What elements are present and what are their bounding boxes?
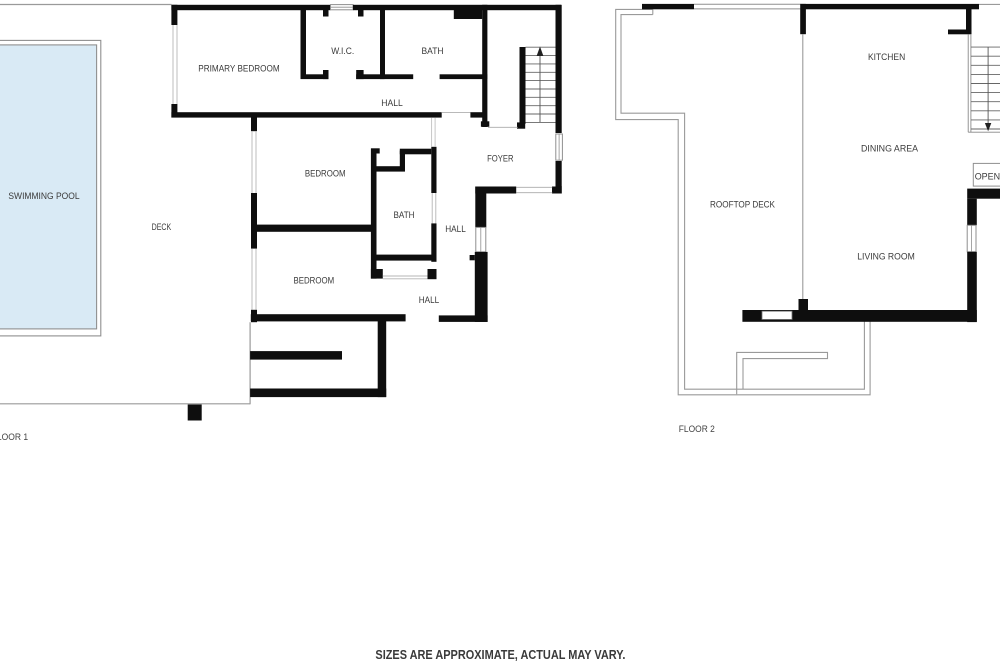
svg-text:DINING AREA: DINING AREA bbox=[861, 144, 919, 155]
svg-text:SIZES ARE APPROXIMATE, ACTUAL: SIZES ARE APPROXIMATE, ACTUAL MAY VARY. bbox=[375, 647, 625, 662]
svg-text:DECK: DECK bbox=[152, 222, 172, 233]
svg-text:KITCHEN: KITCHEN bbox=[868, 52, 905, 63]
svg-text:HALL: HALL bbox=[381, 98, 403, 109]
svg-text:OPEN TO: OPEN TO bbox=[975, 171, 1000, 182]
svg-text:BEDROOM: BEDROOM bbox=[293, 276, 334, 287]
svg-text:W.I.C.: W.I.C. bbox=[331, 46, 354, 57]
svg-text:BATH: BATH bbox=[394, 210, 415, 221]
svg-text:LIVING ROOM: LIVING ROOM bbox=[857, 252, 915, 263]
svg-text:HALL: HALL bbox=[445, 224, 466, 235]
svg-text:FLOOR 1: FLOOR 1 bbox=[0, 432, 28, 443]
svg-text:BEDROOM: BEDROOM bbox=[305, 168, 346, 179]
svg-text:FLOOR 2: FLOOR 2 bbox=[679, 424, 715, 435]
svg-text:SWIMMING POOL: SWIMMING POOL bbox=[8, 191, 80, 202]
svg-text:PRIMARY BEDROOM: PRIMARY BEDROOM bbox=[198, 64, 279, 75]
svg-text:BATH: BATH bbox=[422, 46, 444, 57]
svg-text:HALL: HALL bbox=[419, 295, 440, 306]
svg-text:ROOFTOP DECK: ROOFTOP DECK bbox=[710, 200, 775, 211]
svg-text:FOYER: FOYER bbox=[487, 154, 513, 165]
